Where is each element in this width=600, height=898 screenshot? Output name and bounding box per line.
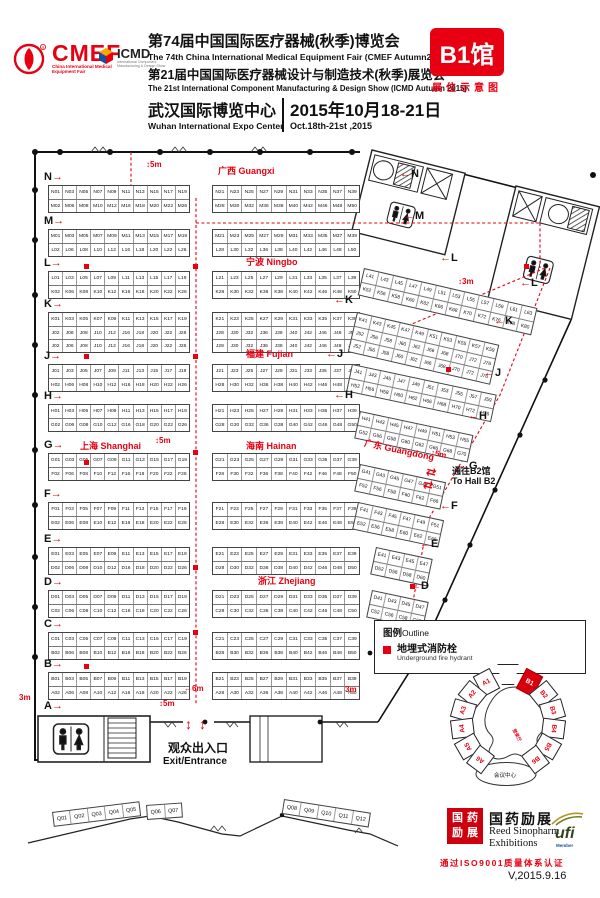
booth-d29: D29 (271, 591, 286, 604)
left-arrow-icon: ← (468, 410, 479, 422)
booth-h16: H16 (118, 379, 132, 391)
booth-m07: M07 (90, 230, 104, 243)
booth-l29: L29 (271, 272, 286, 285)
booth-c38: C38 (271, 605, 286, 617)
booth-k03: K03 (62, 313, 76, 326)
booth-m46: M46 (315, 200, 330, 212)
booth-q04: Q04 (104, 805, 123, 820)
booth-k15: K15 (147, 313, 161, 326)
booth-k38: K38 (271, 286, 286, 298)
booth-j31: J31 (286, 365, 301, 378)
dim-arrow-icon: ↔ (184, 684, 192, 693)
booth-b46: B46 (315, 647, 330, 659)
booth-a38: A38 (271, 687, 286, 699)
booth-d01: D01 (49, 591, 62, 604)
booth-m17: M17 (161, 230, 175, 243)
left-arrow-icon: ← (458, 460, 469, 472)
booth-j28: J28 (213, 327, 227, 339)
booth-a10: A10 (90, 687, 104, 699)
right-arrow-icon: → (52, 390, 63, 402)
booth-f33: F33 (300, 503, 315, 516)
booth-e35: E35 (315, 548, 330, 561)
booth-row: C28C30C32C36C38C40C42C46C48C50 (213, 604, 359, 617)
row-marker-left-n: N→ (44, 171, 63, 183)
booth-c20: C20 (147, 605, 161, 617)
booth-h19: H19 (175, 405, 189, 418)
booth-l31: L31 (286, 272, 301, 285)
row-marker-diag-j: ←J (484, 367, 501, 379)
booth-j38: J38 (271, 327, 286, 339)
booth-island-kL: K01K03K05K07K09K11K13K15K17K19J02J06J08J… (48, 312, 190, 353)
booth-l21: L21 (213, 272, 227, 285)
booth-f12: F12 (104, 468, 118, 480)
booth-m12: M12 (104, 200, 118, 212)
booth-b33: B33 (300, 673, 315, 686)
booth-a42: A42 (300, 687, 315, 699)
booth-c10: C10 (90, 605, 104, 617)
booth-m30: M30 (227, 200, 242, 212)
booth-m42: M42 (300, 200, 315, 212)
booth-c25: C25 (241, 633, 256, 646)
booth-k33: K33 (300, 313, 315, 326)
booth-h35: H35 (315, 405, 330, 418)
booth-j36: J36 (256, 327, 271, 339)
row-marker-diag-k: ←K (494, 315, 513, 327)
booth-d10: D10 (90, 562, 104, 574)
booth-e11: E11 (118, 548, 132, 561)
left-arrow-icon: ← (400, 168, 411, 180)
booth-e13: E13 (133, 548, 147, 561)
booth-k18: K18 (133, 286, 147, 298)
booth-j20: J20 (147, 340, 161, 352)
booth-g48: G48 (330, 419, 345, 431)
booth-c11: C11 (118, 633, 132, 646)
right-arrow-icon: → (50, 350, 61, 362)
booth-h03: H03 (62, 405, 76, 418)
booth-a16: A16 (118, 687, 132, 699)
booth-k27: K27 (256, 313, 271, 326)
booth-m02: M02 (49, 200, 62, 212)
booth-b29: B29 (271, 673, 286, 686)
booth-m13: M13 (133, 230, 147, 243)
dimension-marker-d7: 3m (345, 685, 357, 694)
booth-row: J02J06J08J10J12J16J18J20J22J26 (49, 326, 189, 339)
booth-m39: M39 (344, 230, 359, 243)
booth-f20: F20 (147, 468, 161, 480)
booth-m32: M32 (241, 200, 256, 212)
booth-l28: L28 (213, 244, 227, 256)
booth-row: J02J06J08J10J12J16J18J20J22J26 (49, 339, 189, 352)
booth-d11: D11 (118, 591, 132, 604)
booth-island-eR: E21E23E25E27E29E31E33E35E37E39D28D30D32D… (212, 547, 360, 575)
booth-d39: D39 (344, 591, 359, 604)
booth-l35: L35 (315, 272, 330, 285)
booth-l01: L01 (49, 272, 62, 285)
booth-e18: E18 (133, 517, 147, 529)
booth-h15: H15 (147, 405, 161, 418)
booth-d50: D50 (344, 562, 359, 574)
booth-row: C01C03C05C07C09C11C13C15C17C19 (49, 633, 189, 646)
booth-g23: G23 (227, 454, 242, 467)
booth-j01: J01 (49, 365, 62, 378)
booth-row: D02D06D08D10D12D16D18D20D22D26 (49, 561, 189, 574)
booth-e10: E10 (90, 517, 104, 529)
booth-g09: G09 (104, 454, 118, 467)
booth-c31: C31 (286, 633, 301, 646)
booth-l13: L13 (133, 272, 147, 285)
booth-b28: B28 (213, 647, 227, 659)
version-label: V,2015.9.16 (508, 870, 566, 882)
booth-h40: H40 (286, 379, 301, 391)
booth-d15: D15 (147, 591, 161, 604)
booth-k26: K26 (175, 286, 189, 298)
booth-j19: J19 (175, 365, 189, 378)
row-marker-left-g: G→ (44, 439, 64, 451)
booth-g29: G29 (271, 454, 286, 467)
booth-c22: C22 (161, 605, 175, 617)
booth-h17: H17 (161, 405, 175, 418)
booth-h12: H12 (104, 379, 118, 391)
booth-h42: H42 (300, 379, 315, 391)
exit-arrow-icon: ↕ (199, 716, 206, 732)
booth-l50: L50 (344, 244, 359, 256)
right-arrow-icon: → (52, 618, 63, 630)
booth-b06: B06 (62, 647, 76, 659)
booth-m21: M21 (213, 230, 227, 243)
booth-a40: A40 (286, 687, 301, 699)
booth-row: F21F23F25F27F29F31F33F35F37F39 (213, 503, 359, 516)
booth-row: J21J23J25J27J29J31J33J35J37J39 (213, 365, 359, 378)
booth-d07: D07 (90, 591, 104, 604)
booth-k30: K30 (227, 286, 242, 298)
booth-g25: G25 (241, 454, 256, 467)
dim-arrow-icon: ↕ (155, 436, 159, 445)
booth-b20: B20 (147, 647, 161, 659)
booth-l25: L25 (241, 272, 256, 285)
legend-box: 图例Outline 地埋式消防栓 Underground fire hydran… (374, 620, 586, 674)
booth-c23: C23 (227, 633, 242, 646)
booth-b22: B22 (161, 647, 175, 659)
booth-row: Q06Q07 (147, 804, 182, 819)
booth-c50: C50 (344, 605, 359, 617)
booth-row: M21M23M25M27M29M31M33M35M37M39 (213, 230, 359, 243)
booth-island-jR: J21J23J25J27J29J31J33J35J37J39H28H30H32H… (212, 364, 360, 392)
booth-b42: B42 (300, 647, 315, 659)
booth-d25: D25 (241, 591, 256, 604)
booth-j27: J27 (256, 365, 271, 378)
booth-d27: D27 (256, 591, 271, 604)
floorplan-page: R CMEF China International Medical Equip… (0, 0, 600, 898)
booth-m27: M27 (256, 230, 271, 243)
booth-f06: F06 (62, 468, 76, 480)
booth-h09: H09 (104, 405, 118, 418)
booth-k32: K32 (241, 286, 256, 298)
booth-row: E02E06E08E10E12E16E18E20E22E26 (49, 516, 189, 529)
booth-island-cL: C01C03C05C07C09C11C13C15C17C19B02B06B08B… (48, 632, 190, 660)
booth-l48: L48 (330, 244, 345, 256)
booth-k42: K42 (300, 286, 315, 298)
booth-e20: E20 (147, 517, 161, 529)
booth-row: N01N03N05N07N09N11N13N15N17N19 (49, 186, 189, 199)
booth-l09: L09 (104, 272, 118, 285)
booth-e07: E07 (90, 548, 104, 561)
booth-c15: C15 (147, 633, 161, 646)
booth-row: B02B06B08B10B12B16B18B20B22B26 (49, 646, 189, 659)
booth-j10: J10 (90, 327, 104, 339)
fire-hydrant-marker (193, 264, 198, 269)
booth-row: N21N23N25N27N29N31N33N35N37N39 (213, 186, 359, 199)
booth-j08: J08 (76, 340, 90, 352)
booth-q09: Q09 (299, 803, 318, 819)
booth-b38: B38 (271, 647, 286, 659)
left-arrow-icon: ← (494, 315, 505, 327)
region-label-zhejiang: 浙江 Zhejiang (258, 574, 316, 587)
booth-g15: G15 (147, 454, 161, 467)
booth-n35: N35 (315, 186, 330, 199)
row-marker-left-f: F→ (44, 488, 62, 500)
booth-g38: G38 (271, 419, 286, 431)
booth-q03: Q03 (87, 807, 106, 822)
booth-e37: E37 (330, 548, 345, 561)
booth-d16: D16 (118, 562, 132, 574)
booth-l08: L08 (76, 244, 90, 256)
booth-b09: B09 (104, 673, 118, 686)
booth-row: E01E03E05E07E09E11E13E15E17E19 (49, 548, 189, 561)
booth-island-jL: J01J03J05J07J09J11J13J15J17J19H02H06H08H… (48, 364, 190, 392)
booth-b05: B05 (76, 673, 90, 686)
booth-e23: E23 (227, 548, 242, 561)
booth-island-fR: F21F23F25F27F29F31F33F35F37F39E28E30E32E… (212, 502, 360, 530)
booth-f46: F46 (315, 468, 330, 480)
booth-a22: A22 (161, 687, 175, 699)
booth-c17: C17 (161, 633, 175, 646)
booth-k10: K10 (90, 286, 104, 298)
booth-m03: M03 (62, 230, 76, 243)
booth-j11: J11 (118, 365, 132, 378)
booth-a48: A48 (330, 687, 345, 699)
booth-island-eL: E01E03E05E07E09E11E13E15E17E19D02D06D08D… (48, 547, 190, 575)
booth-l20: L20 (147, 244, 161, 256)
booth-m15: M15 (147, 230, 161, 243)
booth-row: B28B30B32B36B38B40B42B46B48B50 (213, 646, 359, 659)
booth-n23: N23 (227, 186, 242, 199)
booth-c27: C27 (256, 633, 271, 646)
booth-c29: C29 (271, 633, 286, 646)
booth-j09: J09 (104, 365, 118, 378)
booth-n31: N31 (286, 186, 301, 199)
fire-hydrant-marker (84, 264, 89, 269)
ufi-logo: ufi (555, 825, 575, 843)
booth-a36: A36 (256, 687, 271, 699)
booth-row: K02K06K08K10K12K16K18K20K22K26 (49, 285, 189, 298)
booth-c37: C37 (330, 633, 345, 646)
booth-e30: E30 (227, 517, 242, 529)
region-label-guangxi: 广西 Guangxi (218, 164, 275, 177)
booth-h29: H29 (271, 405, 286, 418)
booth-l05: L05 (76, 272, 90, 285)
booth-m38: M38 (271, 200, 286, 212)
booth-d19: D19 (175, 591, 189, 604)
booth-c26: C26 (175, 605, 189, 617)
booth-row: A02A06A08A10A12A16A18A20A22A26 (49, 686, 189, 699)
booth-f28: F28 (213, 468, 227, 480)
booth-row: D28D30D32D36D38D40D42D46D48D50 (213, 561, 359, 574)
dim-arrow-icon: ↕ (146, 160, 150, 169)
booth-row: J01J03J05J07J09J11J13J15J17J19 (49, 365, 189, 378)
right-arrow-icon: → (52, 171, 63, 183)
booth-island-cR: C21C23C25C27C29C31C33C35C37C39B28B30B32B… (212, 632, 360, 660)
dimension-marker-d8: ↕5m (159, 699, 175, 708)
booth-g26: G26 (175, 419, 189, 431)
fire-hydrant-marker (446, 367, 451, 372)
booth-f30: F30 (227, 468, 242, 480)
region-label-hainan: 海南 Hainan (246, 439, 297, 452)
booth-f19: F19 (175, 503, 189, 516)
booth-e40: E40 (286, 517, 301, 529)
booth-k23: K23 (227, 313, 242, 326)
booth-g42: G42 (300, 419, 315, 431)
right-arrow-icon: → (52, 658, 63, 670)
booth-c07: C07 (90, 633, 104, 646)
booth-j30: J30 (227, 340, 242, 352)
booth-island-hL: H01H03H05H07H09H11H13H15H17H19G02G06G08G… (48, 404, 190, 432)
booth-j28: J28 (213, 340, 227, 352)
booth-j29: J29 (271, 365, 286, 378)
booth-h25: H25 (241, 405, 256, 418)
booth-g19: G19 (175, 454, 189, 467)
booth-k13: K13 (133, 313, 147, 326)
booth-a46: A46 (315, 687, 330, 699)
booth-h46: H46 (315, 379, 330, 391)
booth-h20: H20 (147, 379, 161, 391)
booth-b26: B26 (175, 647, 189, 659)
booth-d12: D12 (104, 562, 118, 574)
booth-f26: F26 (175, 468, 189, 480)
booth-row: H02H06H08H10H12H16H18H20H22H26 (49, 378, 189, 391)
booth-h18: H18 (133, 379, 147, 391)
booth-j25: J25 (241, 365, 256, 378)
booth-f22: F22 (161, 468, 175, 480)
booth-g10: G10 (90, 419, 104, 431)
booth-m28: M28 (213, 200, 227, 212)
to-b2-label-en: To Hall B2 (452, 476, 495, 486)
booth-f08: F08 (76, 468, 90, 480)
booth-l23: L23 (227, 272, 242, 285)
booth-n29: N29 (271, 186, 286, 199)
booth-e01: E01 (49, 548, 62, 561)
booth-l12: L12 (104, 244, 118, 256)
booth-b36: B36 (256, 647, 271, 659)
booth-g13: G13 (133, 454, 147, 467)
booth-k36: K36 (256, 286, 271, 298)
booth-row: G02G06G08G10G12G16G18G20G22G26 (49, 418, 189, 431)
booth-b32: B32 (241, 647, 256, 659)
booth-h06: H06 (62, 379, 76, 391)
booth-k08: K08 (76, 286, 90, 298)
booth-b15: B15 (147, 673, 161, 686)
booth-f27: F27 (256, 503, 271, 516)
booth-j26: J26 (175, 327, 189, 339)
booth-m33: M33 (300, 230, 315, 243)
booth-k09: K09 (104, 313, 118, 326)
booth-m22: M22 (161, 200, 175, 212)
booth-e42: E42 (300, 517, 315, 529)
booth-c16: C16 (118, 605, 132, 617)
booth-j06: J06 (62, 340, 76, 352)
booth-f35: F35 (315, 503, 330, 516)
booth-j21: J21 (213, 365, 227, 378)
booth-b50: B50 (344, 647, 359, 659)
booth-e36: E36 (256, 517, 271, 529)
booth-b48: B48 (330, 647, 345, 659)
booth-m10: M10 (90, 200, 104, 212)
booth-l03: L03 (62, 272, 76, 285)
booth-n03: N03 (62, 186, 76, 199)
booth-h07: H07 (90, 405, 104, 418)
booth-d48: D48 (330, 562, 345, 574)
booth-j07: J07 (90, 365, 104, 378)
booth-m31: M31 (286, 230, 301, 243)
booth-g06: G06 (62, 419, 76, 431)
dimension-marker-d2: ↕3m (458, 277, 474, 286)
booth-row: F02F06F08F10F12F16F18F20F22F26 (49, 467, 189, 480)
booth-j40: J40 (286, 327, 301, 339)
booth-g28: G28 (213, 419, 227, 431)
booth-d02: D02 (49, 562, 62, 574)
booth-island-mR: M21M23M25M27M29M31M33M35M37M39L28L30L32L… (212, 229, 360, 257)
ufi-swoosh-icon (550, 812, 584, 826)
booth-c19: C19 (175, 633, 189, 646)
row-marker-diag-h: ←H (468, 410, 487, 422)
booth-g32: G32 (241, 419, 256, 431)
fire-hydrant-marker (193, 450, 198, 455)
booth-n33: N33 (300, 186, 315, 199)
booth-m18: M18 (133, 200, 147, 212)
booth-j16: J16 (118, 340, 132, 352)
booth-j03: J03 (62, 365, 76, 378)
booth-g16: G16 (118, 419, 132, 431)
booth-b31: B31 (286, 673, 301, 686)
booth-g18: G18 (133, 419, 147, 431)
booth-g27: G27 (256, 454, 271, 467)
booth-f48: F48 (330, 468, 345, 480)
booth-e17: E17 (161, 548, 175, 561)
booth-b21: B21 (213, 673, 227, 686)
booth-j30: J30 (227, 327, 242, 339)
booth-f21: F21 (213, 503, 227, 516)
exit-arrow-icon: ↕ (185, 716, 192, 732)
booth-f13: F13 (133, 503, 147, 516)
booth-f42: F42 (300, 468, 315, 480)
booth-k21: K21 (213, 313, 227, 326)
booth-c30: C30 (227, 605, 242, 617)
booth-d37: D37 (330, 591, 345, 604)
booth-n37: N37 (330, 186, 345, 199)
dimension-marker-d3: ↕5m (155, 436, 171, 445)
dimension-marker-d1: ↕5m (146, 160, 162, 169)
booth-j35: J35 (315, 365, 330, 378)
booth-k25: K25 (241, 313, 256, 326)
booth-q12: Q12 (351, 811, 370, 827)
booth-m48: M48 (330, 200, 345, 212)
booth-m29: M29 (271, 230, 286, 243)
legend-title: 图例Outline (383, 625, 577, 639)
booth-m40: M40 (286, 200, 301, 212)
booth-k07: K07 (90, 313, 104, 326)
booth-c36: C36 (256, 605, 271, 617)
booth-a18: A18 (133, 687, 147, 699)
booth-b40: B40 (286, 647, 301, 659)
